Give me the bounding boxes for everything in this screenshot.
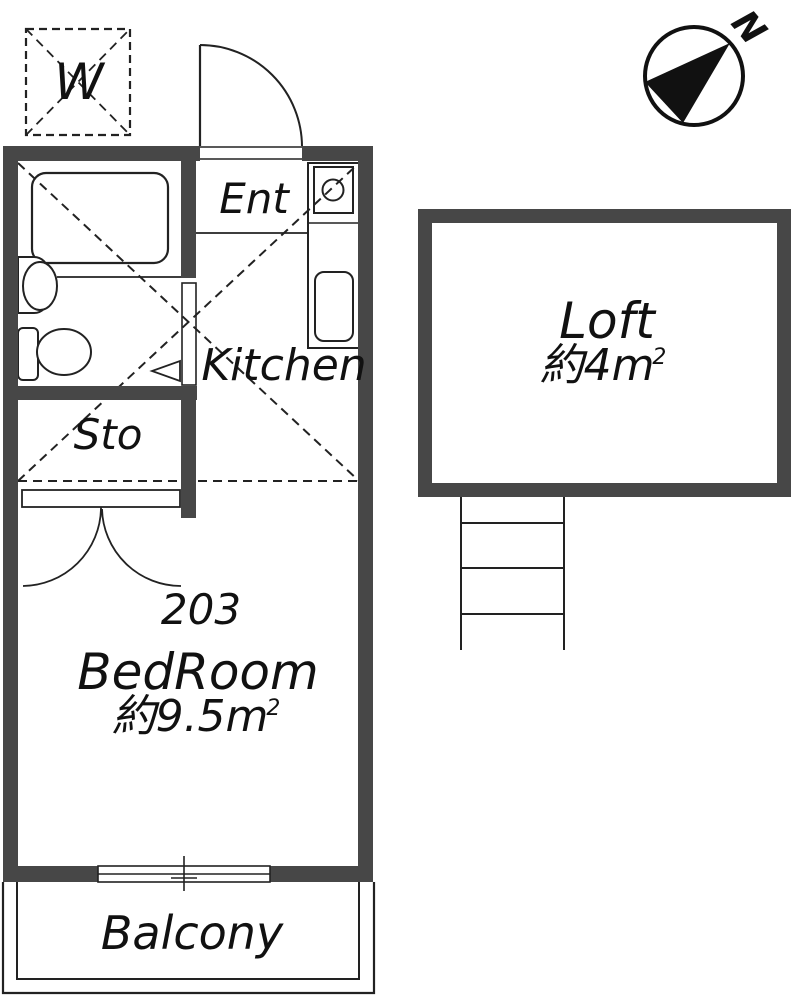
openings-layer — [98, 146, 302, 891]
compass — [645, 27, 743, 125]
loft-area-sup: 2 — [652, 345, 666, 370]
entrance-label: Ent — [219, 178, 289, 220]
loft-area-value: 約4m — [540, 340, 655, 391]
bedroom-area-value: 約9.5m — [112, 691, 269, 742]
wall-bathroom-bottom — [3, 386, 197, 400]
closet-door-swing-left — [23, 509, 101, 586]
loft-ladder — [461, 497, 564, 650]
washer-box-label: W — [54, 57, 103, 107]
closet-door-swing-right — [102, 509, 181, 586]
bedroom-area-sup: 2 — [266, 696, 280, 721]
washbasin-bowl — [23, 262, 57, 310]
bathroom-door-panel — [182, 283, 196, 385]
fixtures-layer — [3, 27, 784, 993]
wall-left — [3, 146, 18, 882]
entrance-door-swing-arc — [200, 45, 302, 147]
kitchen-label: Kitchen — [201, 344, 366, 388]
loft-area: 約4m2 — [540, 344, 667, 388]
floor-plan-drawing — [0, 0, 792, 1000]
toilet-bowl — [37, 329, 91, 375]
bedroom-area: 約9.5m2 — [112, 695, 281, 739]
room-number: 203 — [161, 589, 241, 631]
toilet-tank — [18, 328, 38, 380]
balcony-label: Balcony — [101, 910, 283, 956]
bathtub — [32, 173, 168, 263]
storage-label: Sto — [74, 414, 143, 456]
wall-bathroom-right — [181, 146, 196, 278]
wall-right — [358, 146, 373, 882]
wall-storage-right — [181, 386, 196, 518]
bedroom-label: BedRoom — [77, 647, 318, 697]
folding-door-triangle-icon — [152, 361, 180, 381]
loft-label: Loft — [559, 296, 655, 346]
closet-door-front — [22, 490, 180, 507]
wall-top-left — [3, 146, 200, 161]
floor-plan: W N Ent Kitchen Sto 203 BedRoom 約9.5m2 L… — [0, 0, 792, 1000]
